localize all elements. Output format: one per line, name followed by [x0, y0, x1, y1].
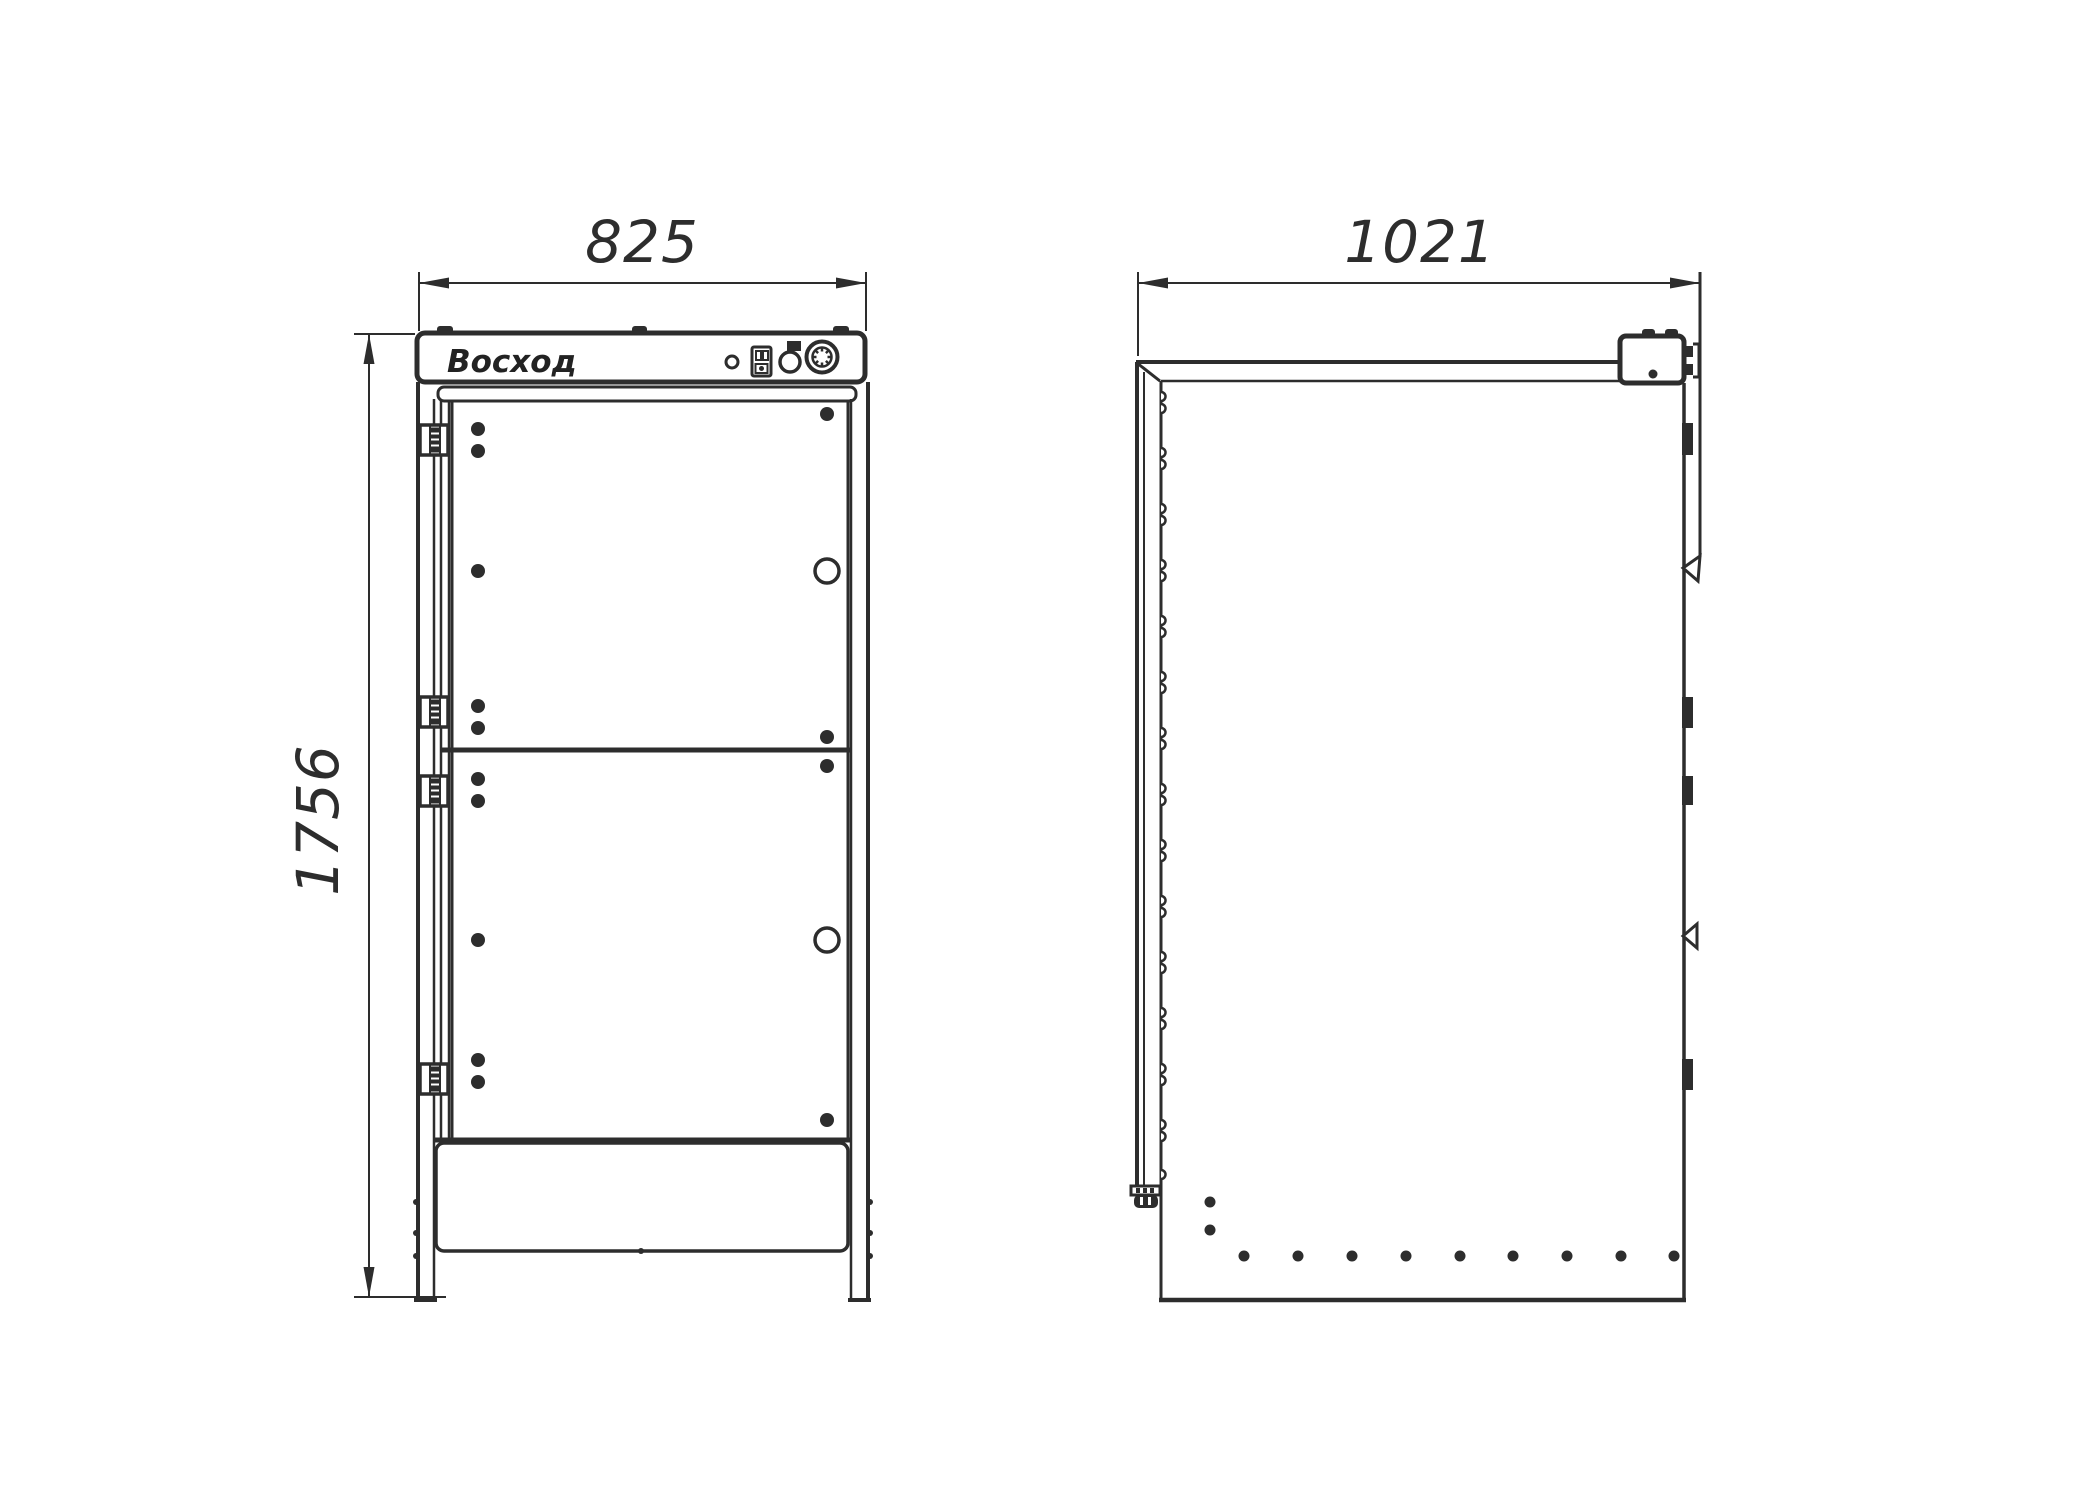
door-hinge [420, 776, 448, 806]
door-hinge [420, 425, 448, 455]
door-bottom-foot [1131, 1186, 1160, 1208]
kick-panel [436, 1143, 848, 1251]
lower-door-lock-hole [815, 928, 839, 952]
control-panel: Восход [417, 326, 865, 382]
drawing-canvas: Восход [0, 0, 2100, 1489]
dim-label-depth: 1021 [1344, 208, 1496, 276]
door-hinge [420, 697, 448, 727]
door-hinge [420, 1064, 448, 1094]
brand-logo: Восход [447, 344, 577, 380]
dim-label-height: 1756 [284, 744, 352, 896]
upper-door-lock-hole [815, 559, 839, 583]
technical-drawing: Восход [0, 0, 2100, 1489]
dim-label-width: 825 [585, 208, 699, 276]
kick-panel-notch [638, 1248, 644, 1254]
